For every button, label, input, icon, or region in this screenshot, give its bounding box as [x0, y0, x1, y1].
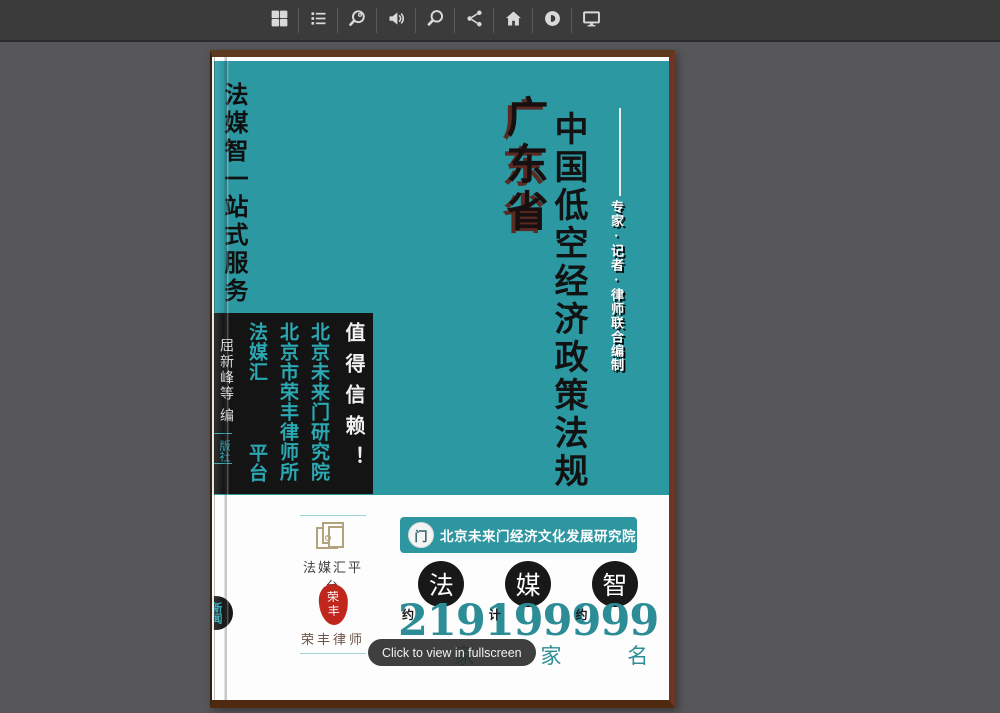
stat-prefix: 计	[489, 606, 501, 623]
table-of-contents-button[interactable]	[299, 5, 337, 36]
sound-button[interactable]	[377, 5, 415, 36]
org-platform: 法媒汇平台	[243, 322, 270, 486]
search-icon	[425, 8, 446, 34]
trust-headline: 值得信赖！	[339, 322, 368, 486]
editors-credit: 专家·记者·律师联合编制	[607, 200, 626, 372]
spine-authors: 屈新峰等	[217, 338, 237, 402]
lawfirm-seal-icon: 荣 丰	[318, 583, 349, 625]
thumbnails-icon	[269, 8, 290, 34]
publisher-divider	[214, 463, 232, 464]
thumbnails-button[interactable]	[260, 5, 298, 36]
book-main-title: 中国低空经济政策法规	[544, 111, 593, 491]
autoplay-icon	[542, 8, 563, 34]
sound-icon	[386, 8, 407, 34]
stat-prefix: 约	[576, 606, 588, 623]
fullscreen-icon	[581, 8, 602, 34]
cover-footer-area: + 法媒汇平台 荣 丰 荣丰律师 门 北京未来门经济文化发展研究院 法	[212, 495, 669, 700]
search-button[interactable]	[416, 5, 454, 36]
table-of-contents-icon	[308, 8, 329, 34]
org-institute: 北京未来门研究院	[305, 322, 332, 486]
book-cover-page[interactable]: 法媒智一站式服务 广东省 中国低空经济政策法规 专家·记者·律师联合编制 值得信…	[210, 50, 675, 708]
platform-frames-logo-icon: +	[314, 522, 352, 554]
publisher-divider	[214, 433, 232, 434]
org-lawfirm: 北京市荣丰律师所	[274, 322, 301, 486]
fullscreen-tooltip: Click to view in fullscreen	[368, 639, 536, 666]
fullscreen-button[interactable]	[572, 5, 610, 36]
institute-banner-text: 北京未来门经济文化发展研究院	[440, 525, 636, 545]
zoom-icon	[347, 8, 368, 34]
org-platform-top: 法媒汇	[246, 322, 267, 382]
spine-service-title: 法媒智一站式服务	[216, 82, 251, 306]
spine-editor-role: 编	[217, 408, 237, 422]
share-icon	[464, 8, 485, 34]
autoplay-button[interactable]	[533, 5, 571, 36]
viewer-stage: 法媒智一站式服务 广东省 中国低空经济政策法规 专家·记者·律师联合编制 值得信…	[0, 0, 1000, 713]
spine-publisher: 版社	[216, 440, 232, 462]
seal-char-bottom: 丰	[327, 604, 340, 618]
lawfirm-seal-label: 荣丰律师	[294, 629, 372, 648]
viewer-toolbar	[0, 0, 1000, 42]
zoom-button[interactable]	[338, 5, 376, 36]
trust-box: 值得信赖！ 北京未来门研究院 北京市荣丰律师所 法媒汇平台 屈新峰等 编 版社	[212, 313, 373, 494]
stat-column-intel: 智 约 999 名	[572, 561, 659, 670]
cover-page-surface: 法媒智一站式服务 广东省 中国低空经济政策法规 专家·记者·律师联合编制 值得信…	[212, 57, 669, 700]
institute-logo-icon: 门	[408, 522, 434, 548]
toolbar-button-group	[260, 5, 610, 36]
footer-divider-top	[300, 515, 366, 516]
page-edge-badge: 新闻	[212, 596, 233, 630]
stat-prefix: 约	[402, 606, 414, 623]
institute-banner: 门 北京未来门经济文化发展研究院	[400, 517, 637, 553]
page-edge-badge-text: 新闻	[212, 602, 224, 624]
home-icon	[503, 8, 524, 34]
footer-divider-bottom	[300, 653, 366, 654]
org-platform-bottom: 平台	[243, 443, 270, 483]
trust-box-columns: 值得信赖！ 北京未来门研究院 北京市荣丰律师所 法媒汇平台	[239, 322, 368, 486]
home-button[interactable]	[494, 5, 532, 36]
share-button[interactable]	[455, 5, 493, 36]
credit-divider-line	[619, 108, 621, 196]
